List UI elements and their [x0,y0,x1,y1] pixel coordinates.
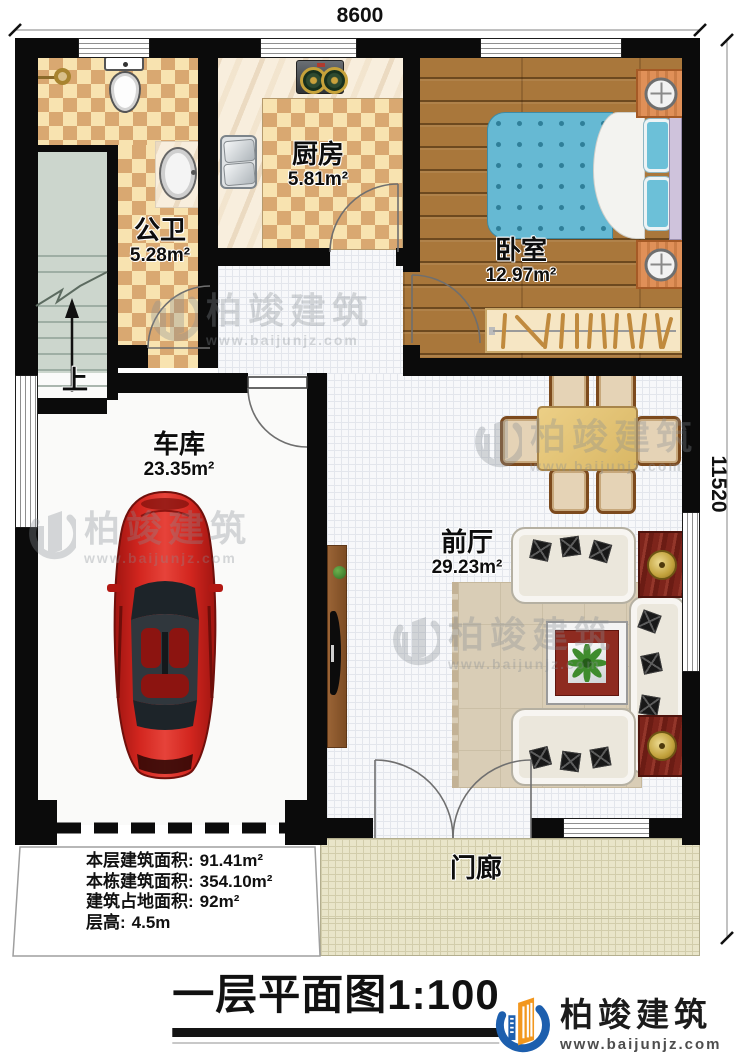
window-hall-bottom [563,818,650,838]
plan-title-text: 一层平面图 [172,971,387,1018]
kitchen-area: 5.81m² [288,169,348,190]
wall-stair-top [35,145,107,152]
tv-plant-icon [333,566,346,579]
garage-name: 车库 [144,430,215,459]
room-label-garage: 车库 23.35m² [144,430,215,480]
wardrobe-hangers-icon [487,310,680,351]
end-table [638,715,686,777]
sofa-pillow [529,746,552,769]
stat-label: 层高: [86,913,126,932]
sofa-loveseat-top [511,527,636,604]
stat-label: 建筑占地面积: [86,892,194,911]
bedroom-area: 12.97m² [486,265,557,286]
bed-pillow [644,119,671,172]
sofa-loveseat-bottom [511,708,636,786]
toilet-tank-icon [104,56,144,71]
sofa-pillow [589,746,611,768]
bed-headboard [669,112,682,240]
hall-area: 29.23m² [432,557,503,578]
sofa-pillow [529,539,552,562]
plant-icon [568,644,606,682]
wall-bedroom-bottom [403,358,682,376]
bathroom-area: 5.28m² [130,245,190,266]
wall-kitchen-door-pivot [396,248,403,266]
kitchen-sink-icon [220,135,257,189]
sink-basin-icon [223,162,256,187]
porch-name: 门廊 [450,854,502,883]
toilet-button-icon [123,62,128,67]
kitchen-name: 厨房 [288,140,348,169]
dining-chair [549,468,589,514]
wall-bath-bottom [118,345,148,368]
sink-basin-icon [223,139,256,164]
company-logo: 柏竣建筑 www.baijunjz.com [488,994,721,1056]
plan-title-block: 一层平面图1:100 [172,974,499,1044]
wall-hall-bottom-c [650,818,682,838]
company-url: www.baijunjz.com [560,1036,721,1053]
stat-value: 354.10m² [200,872,273,891]
stat-label: 本层建筑面积: [86,851,194,870]
porch-floor [320,838,700,956]
stat-value: 91.41m² [200,851,263,870]
stair-up-label: 上 [62,366,88,395]
corridor-floor [218,248,403,375]
hall-name: 前厅 [432,528,503,557]
plan-title-scale: 1:100 [387,971,499,1018]
dimension-right: 11520 [706,455,730,512]
wall-kitchen-bedroom-lower [403,345,420,358]
nightstand-knob-icon [645,248,678,281]
window-bathroom [78,38,150,58]
wall-under-stair [35,398,107,414]
window-bedroom [480,38,622,58]
wall-hall-bottom-a [327,818,373,838]
wall-garage-stub-left [35,800,57,845]
dining-chair [635,416,681,466]
room-label-bedroom: 卧室 12.97m² [486,236,557,286]
lamp-icon [647,731,677,761]
sofa-pillow [637,609,661,633]
stove-panel-icon [317,63,325,67]
company-name: 柏竣建筑 [560,998,721,1031]
window-hall-right [682,512,700,672]
bath-faucet-icon [191,170,196,175]
sofa-pillow [589,540,613,564]
bed-pillow [644,177,671,230]
sofa-pillow [560,751,581,772]
wardrobe [485,308,682,353]
window-garage [15,375,38,528]
stat-value: 92m² [200,892,240,911]
bathroom-name: 公卫 [130,216,190,245]
wall-garage-top [107,373,248,393]
car-icon [85,488,245,790]
lamp-icon [647,550,677,580]
company-logo-icon [488,994,550,1056]
stove-burner-icon [321,67,348,94]
end-table [638,531,686,598]
wall-stair-bath [107,145,118,400]
stat-value: 4.5m [132,913,171,932]
title-underline-thick [172,1028,499,1037]
floor-plan-page: 柏竣建筑 www.baijunjz.com 柏竣建筑 www.baijunjz.… [0,0,750,1064]
dining-table [537,406,638,471]
window-kitchen [260,38,357,58]
towel-ring-icon [54,68,71,85]
coffee-table [546,621,628,705]
room-label-bathroom: 公卫 5.28m² [130,216,190,266]
garage-area: 23.35m² [144,459,215,480]
stairwell-floor [35,152,107,400]
stat-label: 本栋建筑面积: [86,872,194,891]
wall-bath-kitchen [198,56,218,345]
room-label-hall: 前厅 29.23m² [432,528,503,578]
bedroom-name: 卧室 [486,236,557,265]
sofa-pillow [638,694,660,716]
sofa-pillow [560,536,581,557]
dimension-top: 8600 [337,4,384,28]
sofa-pillow [640,652,663,675]
stats-block: 本层建筑面积:91.41m² 本栋建筑面积:354.10m² 建筑占地面积:92… [86,851,272,934]
stove-icon [296,60,344,94]
wall-kitchen-bedroom-upper [403,56,420,272]
dining-chair [596,468,636,514]
title-underline-thin [172,1042,499,1044]
nightstand-knob-icon [645,77,678,110]
wall-bath-bottom-pivot [198,345,218,368]
wall-garage-stub-right [285,800,327,845]
plan-title: 一层平面图1:100 [172,974,499,1016]
wall-right [682,38,700,845]
wall-kitchen-bottom [218,248,330,266]
lamp-center-icon [659,743,665,749]
room-label-porch: 门廊 [450,854,502,883]
wall-hall-bottom-b [531,818,563,838]
nightstand [636,240,686,289]
porch-edge-line [321,918,699,919]
tv-stand-icon [331,645,334,662]
nightstand [636,69,686,118]
wall-garage-hall [307,373,327,825]
lamp-center-icon [659,562,665,568]
room-label-kitchen: 厨房 5.81m² [288,140,348,190]
